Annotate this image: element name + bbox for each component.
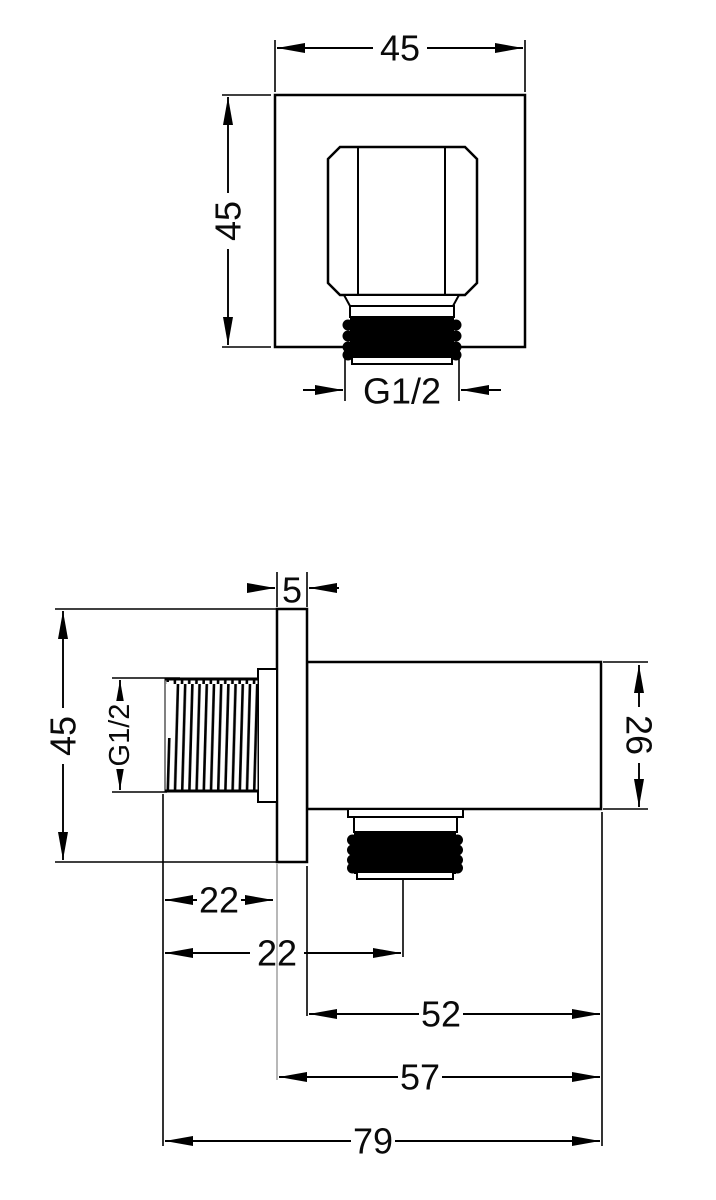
outlet-collar <box>348 809 463 817</box>
thread-crest <box>452 835 463 846</box>
side-inlet-thread <box>165 678 258 792</box>
front-height-label: 45 <box>208 201 249 241</box>
side-body-height-label-group: 26 <box>619 707 660 763</box>
side-height-label-group: 45 <box>43 708 84 764</box>
side-thread-label-group: G1/2 <box>104 701 136 769</box>
side-plate-outline <box>277 609 307 862</box>
front-neck-collar <box>344 295 459 306</box>
front-neck <box>350 306 454 317</box>
side-overall-length-label: 79 <box>353 1121 393 1162</box>
front-view: 45 45 G1/2 <box>208 28 526 412</box>
thread-crest <box>347 835 358 846</box>
technical-drawing: 45 45 G1/2 <box>0 0 716 1200</box>
side-outlet-offset-label: 22 <box>257 933 297 974</box>
side-body-outline <box>307 662 601 809</box>
front-width-label: 45 <box>380 28 420 69</box>
side-body-length-label: 52 <box>421 994 461 1035</box>
thread-crest <box>451 320 462 331</box>
side-thread-label: G1/2 <box>104 704 136 767</box>
thread-end-cap <box>352 357 452 364</box>
outlet-thread-body <box>354 832 456 874</box>
thread-hatch <box>165 678 258 792</box>
side-body-height-label: 26 <box>619 715 660 755</box>
side-view: 5 45 G1/2 26 22 22 52 57 79 <box>43 570 660 1162</box>
side-height-label: 45 <box>43 716 84 756</box>
thread-crest <box>343 331 354 342</box>
thread-crest <box>343 320 354 331</box>
front-thread-label: G1/2 <box>363 371 441 412</box>
thread-crest <box>451 331 462 342</box>
thread-runout <box>167 682 174 738</box>
outlet-neck <box>354 817 457 832</box>
front-body-outline <box>328 147 477 295</box>
front-thread <box>343 316 462 364</box>
side-outlet <box>347 809 463 879</box>
thread-body <box>350 316 454 359</box>
side-body-plus-plate-label: 57 <box>400 1057 440 1098</box>
drawing-canvas: 45 45 G1/2 <box>0 0 716 1200</box>
side-plate-thickness-label: 5 <box>282 570 302 611</box>
side-hex-section <box>258 669 277 802</box>
thread-crest <box>452 845 463 856</box>
thread-crest <box>347 845 358 856</box>
front-height-label-group: 45 <box>208 193 249 249</box>
side-thread-length-label: 22 <box>199 880 239 921</box>
outlet-thread-end-cap <box>357 872 453 879</box>
